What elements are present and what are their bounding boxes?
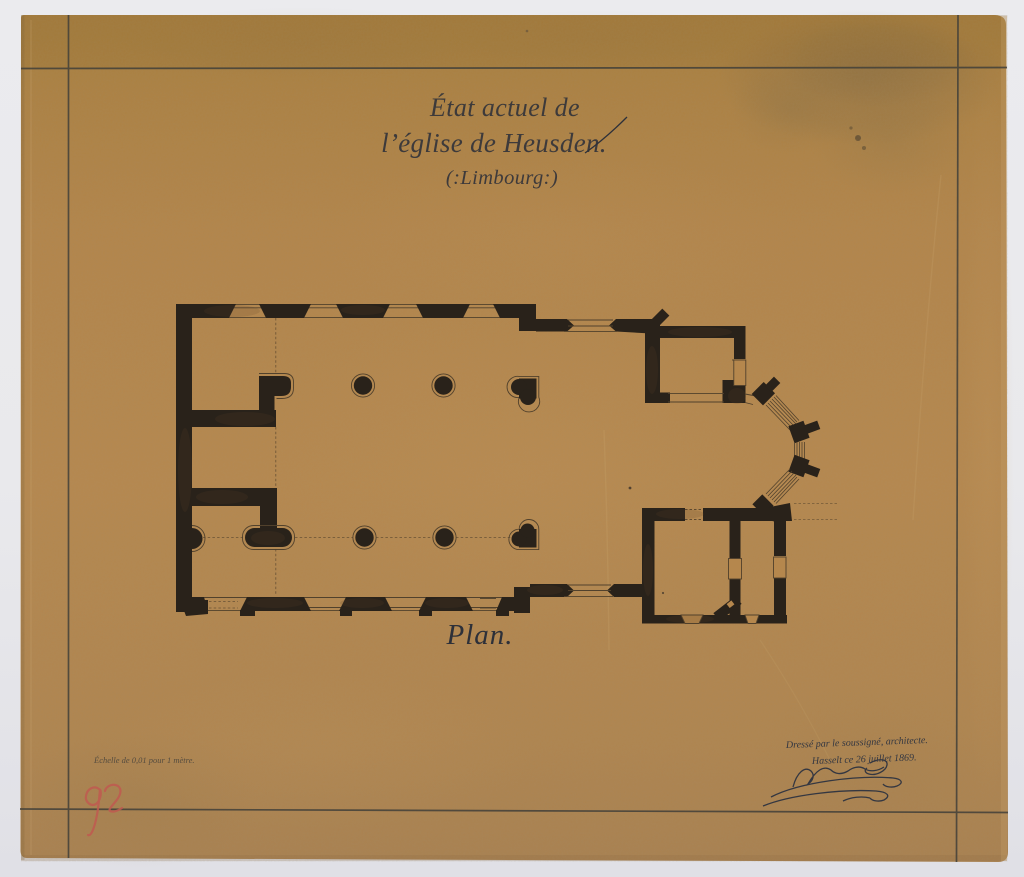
- svg-text:État actuel de: État actuel de: [429, 93, 580, 122]
- svg-text:l’église de Heusden.: l’église de Heusden.: [381, 128, 607, 158]
- svg-text:Échelle de 0,01 pour 1 mètre.: Échelle de 0,01 pour 1 mètre.: [93, 755, 194, 765]
- svg-text:Plan.: Plan.: [445, 619, 513, 651]
- svg-text:(:Limbourg:): (:Limbourg:): [446, 167, 558, 189]
